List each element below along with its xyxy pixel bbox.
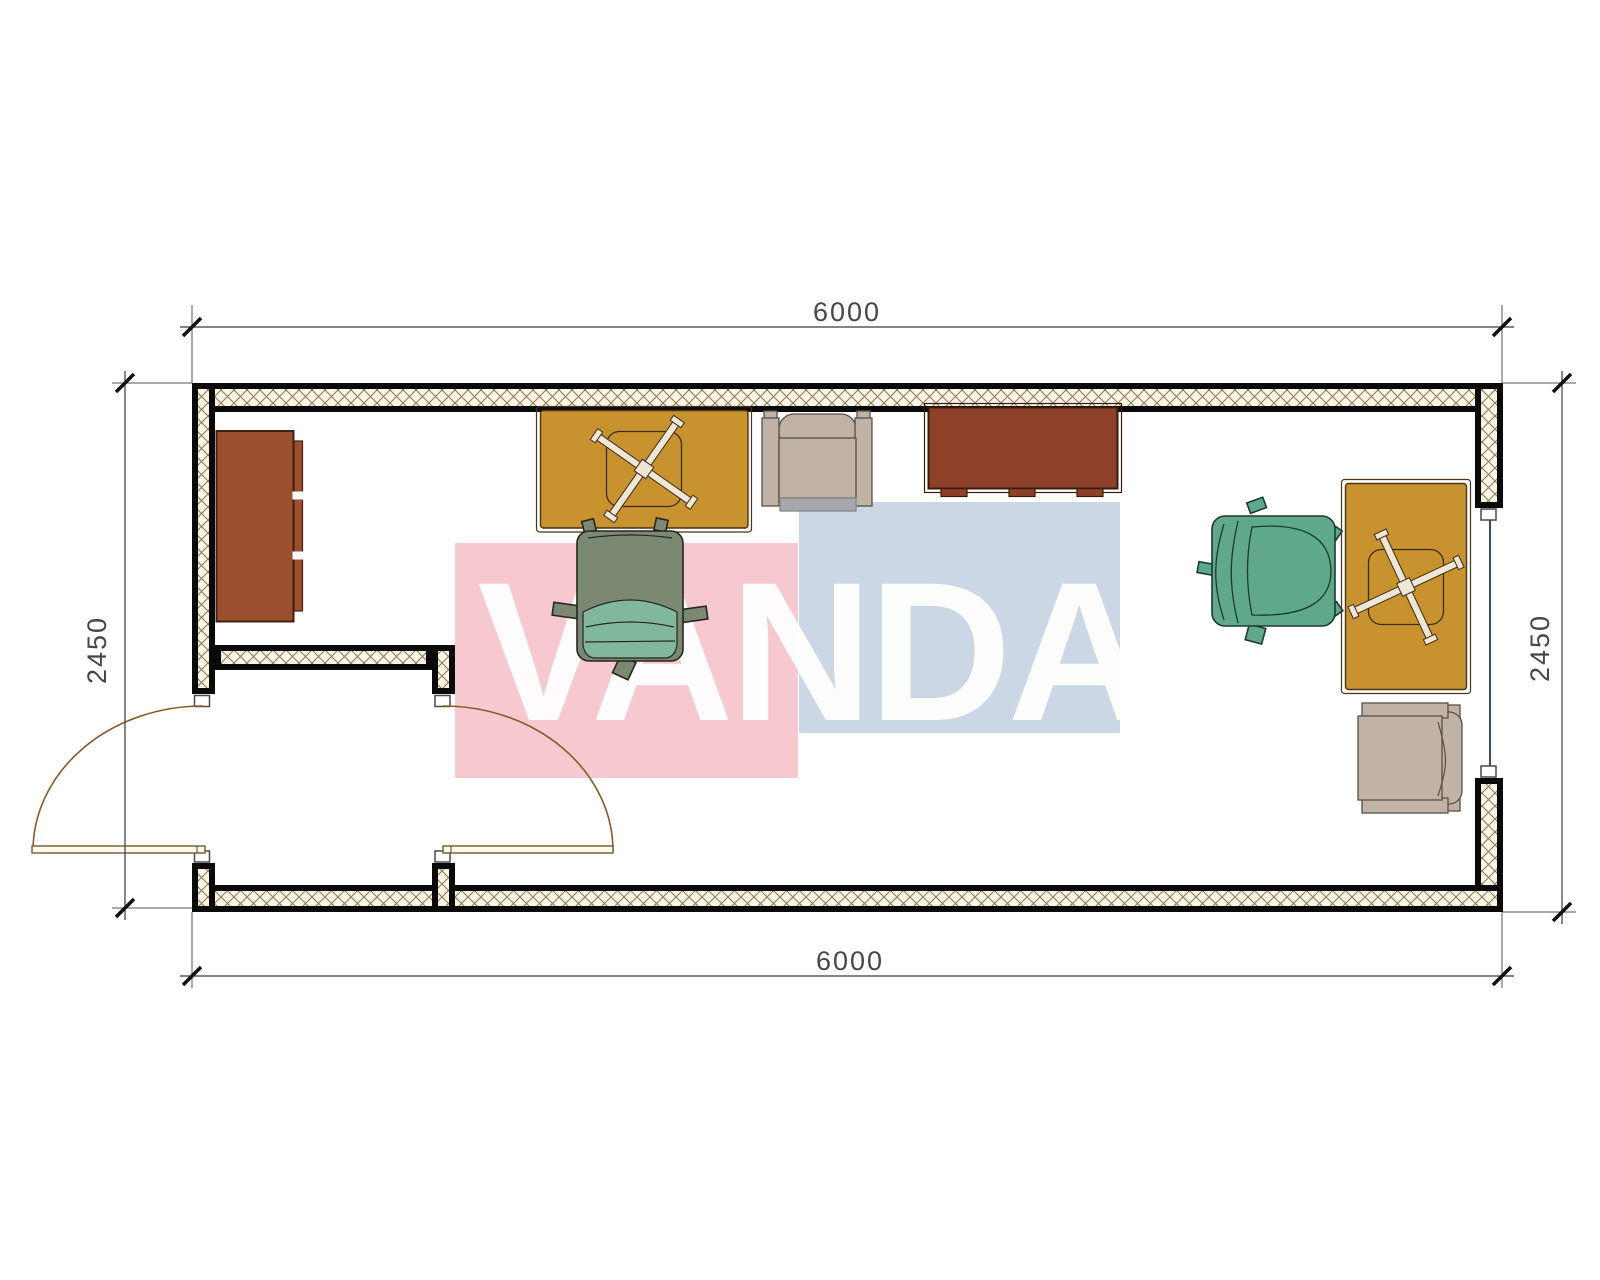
door-jamb xyxy=(435,696,450,707)
dimension-text-right: 2450 xyxy=(1525,614,1555,682)
dimension-text-bottom: 6000 xyxy=(816,946,884,976)
chair-body xyxy=(1212,516,1335,626)
wall-bottom xyxy=(195,888,1500,909)
watermark: VANDA xyxy=(455,502,1147,778)
table-top xyxy=(929,408,1118,489)
armchair-seat xyxy=(779,438,856,498)
wall-bottom-stub-left xyxy=(195,866,212,909)
armchair-right xyxy=(1358,703,1462,813)
cabinet-body xyxy=(217,431,294,622)
wall-left xyxy=(195,386,212,691)
window-jamb xyxy=(1481,509,1496,520)
table-foot xyxy=(1077,489,1103,497)
window-jamb xyxy=(1481,766,1496,777)
chair-caster xyxy=(1245,624,1266,644)
armchair-top xyxy=(762,411,872,511)
cabinet-handle-gap xyxy=(293,492,304,500)
wall-vestibule-partition xyxy=(218,648,429,667)
wall-partition-stub xyxy=(435,648,452,691)
armchair-armrest-left xyxy=(762,418,779,506)
armchair-seat xyxy=(1358,716,1442,800)
table-foot xyxy=(1009,489,1035,497)
armchair-armrest-right xyxy=(855,418,872,506)
desk-right xyxy=(1342,480,1471,694)
floor-plan-page: VANDA xyxy=(0,0,1600,1280)
door-leaf-left xyxy=(32,846,205,853)
dimension-text-top: 6000 xyxy=(813,297,881,327)
desk-left xyxy=(537,407,752,533)
door-leaf-right xyxy=(443,846,613,853)
wall-right-upper xyxy=(1478,386,1500,505)
wall-top xyxy=(195,386,1499,409)
chair-backrest-cushion xyxy=(583,600,677,658)
office-chair-right xyxy=(1197,497,1343,644)
dimension-text-left: 2450 xyxy=(82,616,112,684)
sideboard-cabinet xyxy=(217,431,304,622)
cabinet-front-panel xyxy=(294,441,303,611)
armchair-front-shade xyxy=(780,498,856,511)
chair-caster xyxy=(654,518,668,532)
door-jamb xyxy=(195,696,210,707)
wall-bottom-stub-right xyxy=(435,866,452,909)
cabinet-handle-gap xyxy=(293,552,304,560)
table-foot xyxy=(941,489,967,497)
meeting-table xyxy=(925,404,1122,497)
floor-plan-drawing: VANDA xyxy=(0,0,1600,1280)
